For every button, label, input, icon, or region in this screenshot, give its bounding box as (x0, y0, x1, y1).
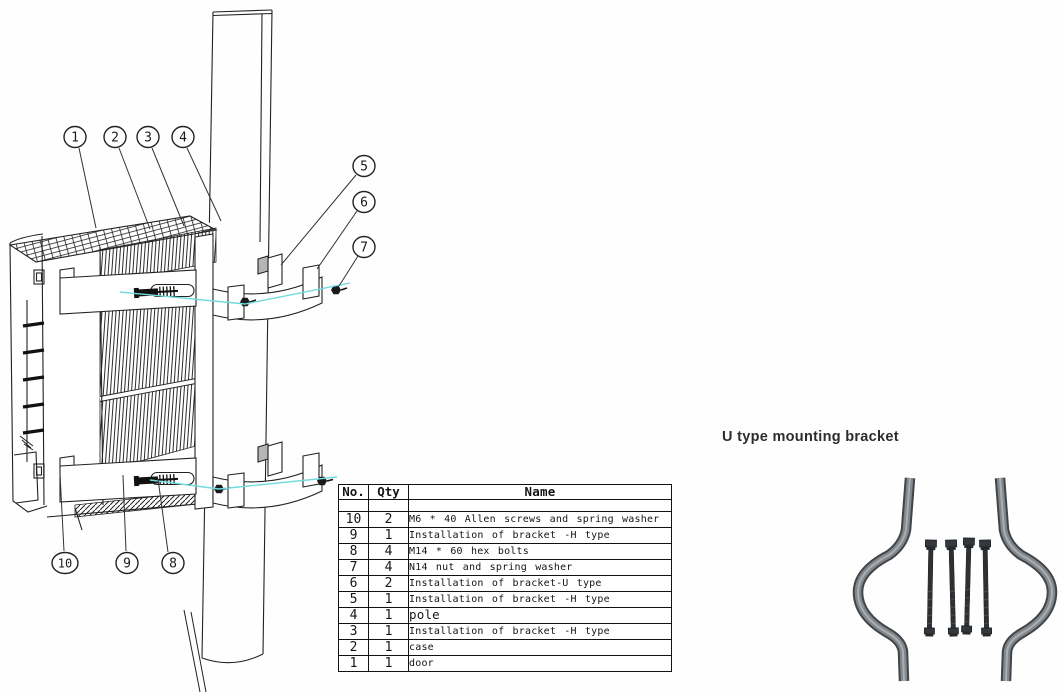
table-row: 4 1 pole (339, 608, 672, 624)
part-qty-cell: 2 (369, 512, 409, 528)
page: 1 2 3 4 5 6 7 8 9 10 (0, 0, 1059, 692)
table-row: 10 2 M6 * 40 Allen screws and spring was… (339, 512, 672, 528)
part-qty-cell: 4 (369, 544, 409, 560)
part-qty-cell: 4 (369, 560, 409, 576)
part-name-cell: door (409, 656, 672, 672)
callout-1: 1 (64, 127, 86, 148)
table-header-row: No. Qty Name (339, 485, 672, 500)
upper-u-clamp (213, 254, 322, 320)
part-name-cell: N14 nut and spring washer (409, 560, 672, 576)
svg-text:1: 1 (71, 131, 79, 146)
lower-u-clamp (213, 442, 322, 508)
callout-9: 9 (116, 553, 138, 574)
part-no-cell: 2 (339, 640, 369, 656)
part-name-cell: Installation of bracket -H type (409, 592, 672, 608)
table-row: 8 4 M14 * 60 hex bolts (339, 544, 672, 560)
part-no-cell: 6 (339, 576, 369, 592)
svg-text:9: 9 (123, 557, 131, 572)
part-qty-cell: 1 (369, 640, 409, 656)
parts-table: No. Qty Name 10 2 M6 * 40 Allen screws a… (338, 484, 672, 672)
bolt-1 (924, 540, 937, 637)
u-bracket-photo (858, 478, 1052, 681)
svg-text:2: 2 (111, 131, 119, 146)
part-qty-cell: 1 (369, 656, 409, 672)
table-row: 1 1 door (339, 656, 672, 672)
bracket-half-left (858, 478, 910, 681)
table-row: 5 1 Installation of bracket -H type (339, 592, 672, 608)
part-qty-cell: 2 (369, 576, 409, 592)
part-name-cell: M14 * 60 hex bolts (409, 544, 672, 560)
svg-text:4: 4 (179, 131, 187, 146)
bracket-half-right (1000, 478, 1052, 681)
table-row: 6 2 Installation of bracket-U type (339, 576, 672, 592)
part-no-cell: 4 (339, 608, 369, 624)
part-no-cell: 7 (339, 560, 369, 576)
part-no-cell: 1 (339, 656, 369, 672)
part-name-cell: Installation of bracket -H type (409, 528, 672, 544)
header-qty: Qty (369, 485, 409, 500)
part-no-cell: 9 (339, 528, 369, 544)
svg-text:7: 7 (360, 241, 368, 256)
part-name-cell: Installation of bracket -H type (409, 624, 672, 640)
part-name-cell: case (409, 640, 672, 656)
header-no: No. (339, 485, 369, 500)
header-name: Name (409, 485, 672, 500)
part-qty-cell: 1 (369, 608, 409, 624)
part-qty-cell: 1 (369, 528, 409, 544)
callout-8: 8 (162, 553, 184, 574)
part-no-cell: 3 (339, 624, 369, 640)
callout-2: 2 (104, 127, 126, 148)
part-no-cell: 10 (339, 512, 369, 528)
part-no-cell: 8 (339, 544, 369, 560)
callout-6: 6 (353, 192, 375, 213)
table-row: 9 1 Installation of bracket -H type (339, 528, 672, 544)
bolt-4 (980, 540, 993, 637)
callout-7: 7 (353, 237, 375, 258)
bolt-2 (946, 540, 960, 637)
table-row: 7 4 N14 nut and spring washer (339, 560, 672, 576)
spacer-row (339, 500, 672, 512)
svg-text:5: 5 (360, 160, 368, 175)
callout-3: 3 (137, 127, 159, 148)
svg-text:10: 10 (58, 557, 72, 571)
bolt-3 (961, 538, 975, 635)
svg-text:8: 8 (169, 557, 177, 572)
callout-5: 5 (353, 156, 375, 177)
part-name-cell: M6 * 40 Allen screws and spring washer (409, 512, 672, 528)
part-name-cell: Installation of bracket-U type (409, 576, 672, 592)
table-row: 2 1 case (339, 640, 672, 656)
part-name-cell: pole (409, 608, 672, 624)
part-no-cell: 5 (339, 592, 369, 608)
callout-10: 10 (52, 553, 78, 574)
h-bracket-rail (195, 234, 213, 509)
part-qty-cell: 1 (369, 592, 409, 608)
callout-4: 4 (172, 127, 194, 148)
svg-text:6: 6 (360, 196, 368, 211)
svg-text:3: 3 (144, 131, 152, 146)
u-bracket-panel-title: U type mounting bracket (722, 429, 899, 445)
table-row: 3 1 Installation of bracket -H type (339, 624, 672, 640)
part-qty-cell: 1 (369, 624, 409, 640)
